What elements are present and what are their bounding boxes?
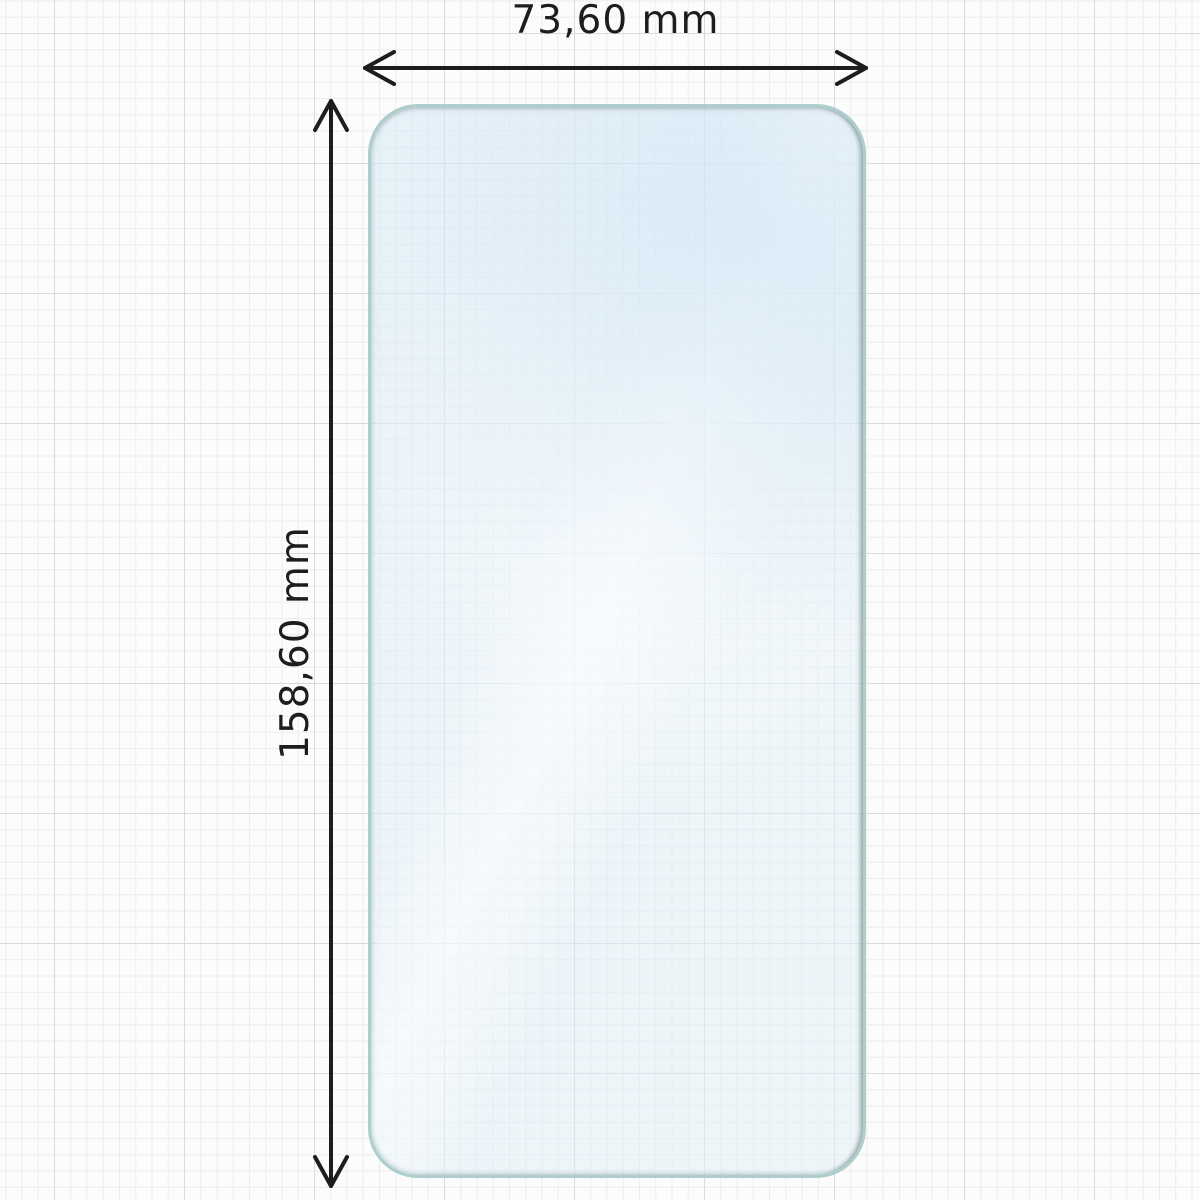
height-dimension-arrow-icon [315,101,347,1186]
screen-protector-film [368,104,866,1178]
height-dimension-label: 158,60 mm [276,526,316,760]
width-dimension-label: 73,60 mm [365,1,866,41]
graph-paper-background: 73,60 mm 158,60 mm [0,0,1200,1200]
width-dimension-arrow-icon [365,52,866,84]
